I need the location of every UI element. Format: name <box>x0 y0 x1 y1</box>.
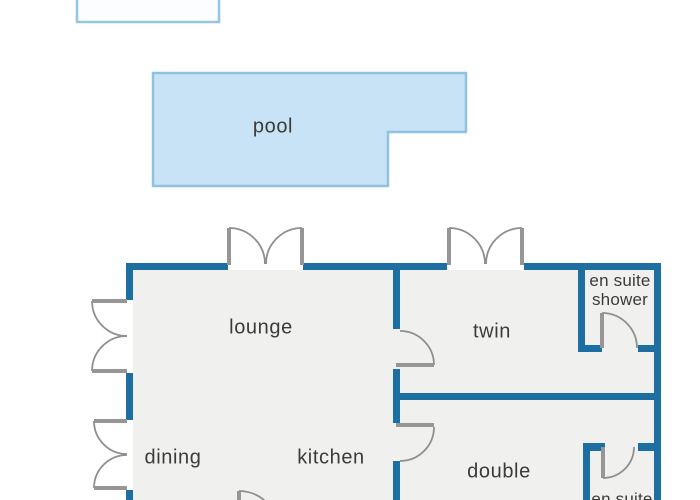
door-leaf <box>300 228 304 265</box>
door-leaf <box>520 228 524 265</box>
door-swing-arc <box>94 455 127 488</box>
wall-ensuite-shower-bottom-b <box>638 345 661 352</box>
door-swing-arc <box>92 301 127 336</box>
wall-center-segment-3 <box>393 461 400 500</box>
wall-left-segment-2 <box>126 373 133 420</box>
wall-left-segment-3 <box>126 490 133 500</box>
door-leaf <box>92 299 127 303</box>
door-leaf <box>94 486 127 490</box>
door-leaf <box>396 363 434 367</box>
door-swing-arc <box>449 228 485 264</box>
door-swing-arc <box>229 228 265 264</box>
room-label-twin: twin <box>473 321 511 344</box>
wall-top-right-segment <box>524 263 661 270</box>
door-swing-arc <box>92 336 127 371</box>
wall-ensuite-left <box>583 443 590 500</box>
outbuilding-shape <box>77 0 219 22</box>
wall-ensuite-shower-left <box>578 263 585 352</box>
room-label-kitchen: kitchen <box>297 447 365 470</box>
pool-shape <box>153 73 466 186</box>
door-leaf <box>447 228 451 265</box>
door-leaf <box>600 313 604 348</box>
floorplan-canvas: pool lounge twin dining kitchen double e… <box>0 0 700 500</box>
wall-center-segment-1 <box>393 263 400 329</box>
door-swing-arc <box>94 421 127 454</box>
wall-left-segment-1 <box>126 263 133 300</box>
door-leaf <box>92 369 127 373</box>
door-leaf <box>237 491 241 500</box>
room-label-double: double <box>467 461 531 484</box>
wall-right <box>654 263 661 500</box>
room-label-ensuite-shower-line1: en suite <box>589 271 650 290</box>
room-label-lounge: lounge <box>229 317 293 340</box>
room-label-dining: dining <box>145 447 202 470</box>
pool-label: pool <box>253 116 293 139</box>
door-leaf <box>601 447 605 478</box>
door-swing-arc <box>486 228 522 264</box>
room-label-ensuite: en suite <box>591 490 652 500</box>
floorplan-drawing <box>0 0 700 500</box>
wall-twin-double-divider <box>393 393 661 400</box>
wall-top-middle-segment <box>303 263 447 270</box>
wall-top-left-segment <box>126 263 228 270</box>
door-leaf <box>94 419 127 423</box>
door-leaf <box>227 228 231 265</box>
room-label-ensuite-shower: en suite shower <box>589 271 650 309</box>
wall-ensuite-shower-bottom-a <box>578 345 602 352</box>
room-label-ensuite-shower-line2: shower <box>589 290 650 309</box>
door-swing-arc <box>266 228 302 264</box>
door-leaf <box>396 423 434 427</box>
wall-ensuite-top-b <box>638 443 661 451</box>
